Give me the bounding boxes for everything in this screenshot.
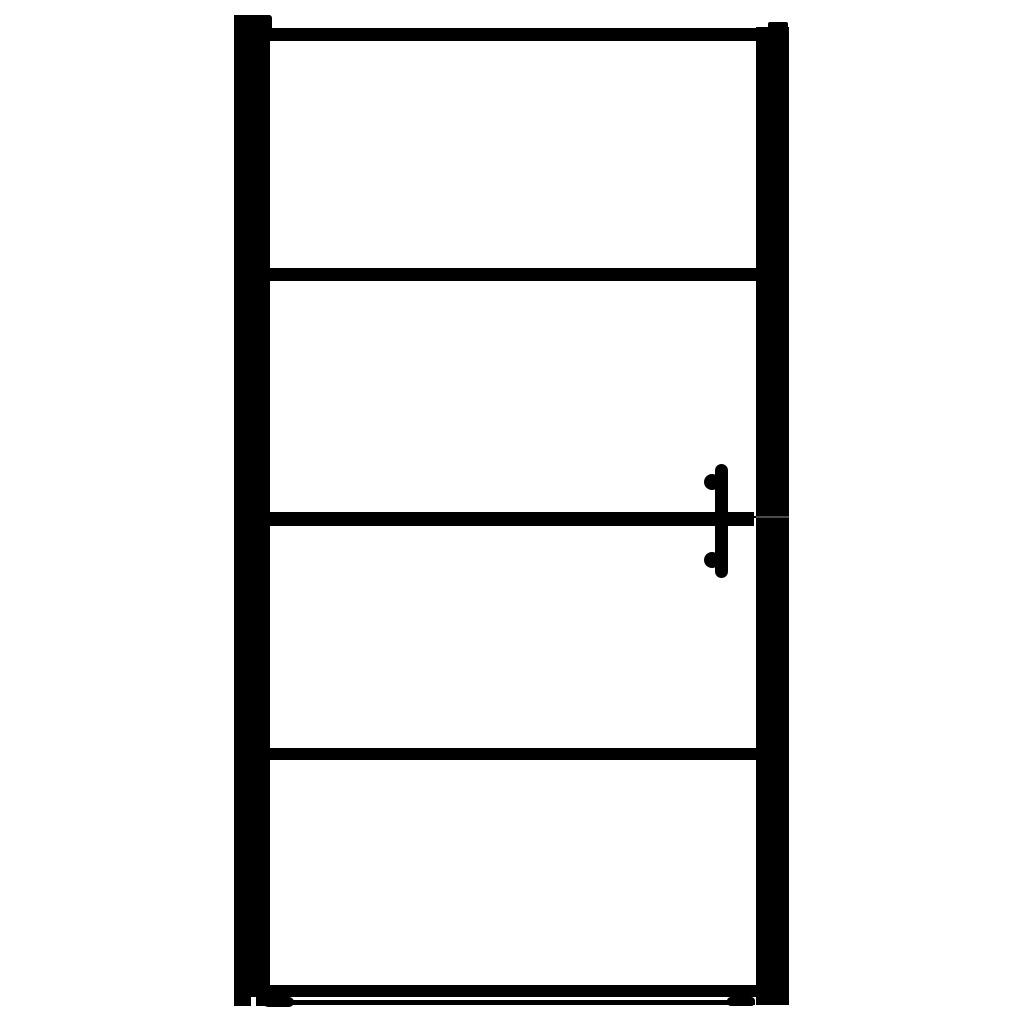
right-profile-seam (756, 516, 789, 518)
bottom-seal-cap-right (727, 997, 755, 1006)
handle-standoff-top (704, 474, 720, 490)
glass-panel-4 (270, 760, 756, 985)
left-profile-bracket (252, 15, 272, 28)
product-photo-canvas (0, 0, 1024, 1024)
right-profile-bracket (768, 22, 788, 32)
bottom-seal-cap-left (263, 997, 294, 1007)
handle-standoff-bottom (704, 552, 720, 568)
bottom-seal-strip (263, 1000, 755, 1005)
left-wall-profile (234, 15, 270, 1006)
crossbar-3-handle-level (268, 512, 754, 526)
crossbar-4 (268, 748, 756, 760)
left-profile-bottom-notch (251, 997, 256, 1007)
bottom-rail (268, 985, 756, 997)
glass-panel-3 (270, 526, 756, 748)
glass-panel-2 (270, 281, 756, 512)
crossbar-2 (268, 268, 756, 281)
top-rail (268, 28, 756, 41)
glass-panel-1 (270, 41, 756, 268)
